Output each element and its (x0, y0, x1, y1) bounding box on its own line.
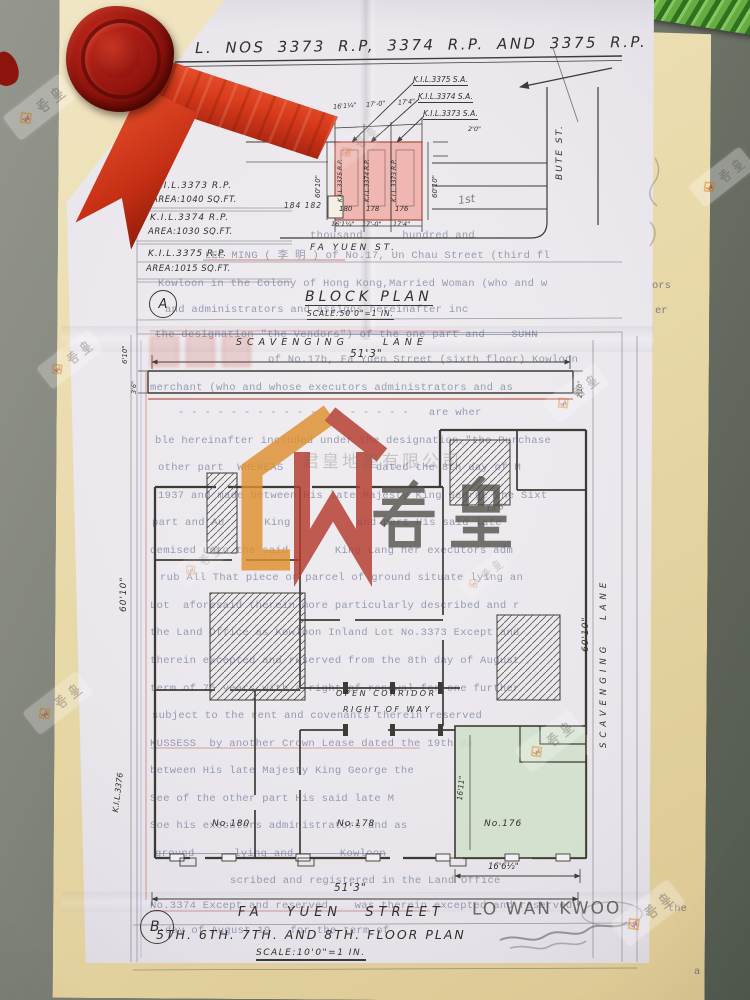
block-dim-left: 60'10" (315, 175, 322, 198)
watermark-company-text: 君皇地產有限公司 (302, 447, 462, 472)
fa-yuen-street-label: FA YUEN STREET (238, 906, 445, 919)
lot-1-number: K.I.L.3373 R.P. (153, 182, 232, 191)
room-label-180: No.180 (212, 820, 250, 829)
block-top-dim-1: 16'1¼" (333, 102, 357, 111)
bute-st-label: BUTE ST. (556, 124, 565, 180)
floor-left-top-dim: 6'10" (122, 345, 129, 364)
pencil-name-lo-wan-kwoo: LO WAN KWOO (472, 898, 622, 919)
block-bottom-dim-2: 17'-0" (362, 221, 382, 228)
leader-label-3374: K.I.L.3374 S.A. (418, 93, 473, 103)
section-a-marker: A (149, 290, 177, 318)
scavenging-lane-right-label: SCAVENGING LANE (600, 578, 609, 748)
lot-2-number: K.I.L.3374 R.P. (150, 214, 229, 223)
lot-2-area: AREA:1030 SQ.FT. (148, 228, 233, 237)
floor-dim-right: 60'10" (582, 616, 591, 652)
floor-top-dim: 51'3" (350, 349, 383, 360)
flo or-plan-title: 5TH. 6TH. 7TH. AND 8TH. FLOOR PLAN (156, 929, 466, 942)
room-label-176: No.176 (484, 820, 522, 829)
floor-plan-scale: SCALE:10'0"=1 IN. (256, 949, 366, 961)
strip-lot-3374: K.I.L.3374 R.P. (365, 159, 371, 202)
house-no-180: 180 (339, 206, 352, 213)
fa-yuen-st-label: FA YUEN ST. (310, 244, 397, 253)
block-plan-scale: SCALE:50'0"=1 IN. (307, 310, 394, 320)
lot-3-area: AREA:1015 SQ.FT. (146, 265, 231, 274)
block-bottom-dim-3: 17'4" (393, 221, 410, 228)
leader-label-3375: K.I.L.3375 S.A. (413, 76, 468, 86)
block-top-dim-3: 17'4" (398, 98, 416, 106)
wax-seal-emboss (94, 32, 140, 78)
floor-bottom-dim: 51'3" (334, 883, 367, 894)
floor-bottom-right-dim: 16'6½" (488, 863, 519, 872)
block-bottom-dim-1: 16'1¼" (331, 221, 354, 228)
right-of-way-label: RIGHT OF WAY (343, 706, 432, 714)
block-top-dim-2: 17'-0" (366, 100, 386, 108)
lot-1-area: AREA:1040 SQ.FT. (152, 196, 237, 205)
strip-lot-3373: K.I.L.3373 R.P. (392, 159, 398, 202)
floor-dim-left: 60'10" (120, 576, 129, 612)
floor-left-small-dim: 3'6" (131, 381, 138, 394)
leader-label-3373: K.I.L.3373 S.A. (423, 110, 478, 120)
room-label-178: No.178 (337, 820, 375, 829)
photographed-deed-document: thousand hundred andLEE MING ( 李 明 ) of … (0, 0, 750, 1000)
block-dim-right: 60'10" (432, 175, 439, 198)
scavenging-lane-top-label: SCAVENGING LANE (236, 338, 428, 348)
lot-3-number: K.I.L.3375 R.P. (148, 250, 227, 259)
open-corridor-label: OPEN CORRIDOR (336, 690, 437, 698)
house-no-176: 176 (395, 206, 408, 213)
house-no-178: 178 (366, 206, 379, 213)
neighbor-house-nos: 184 182 (284, 202, 322, 210)
pencil-note: 1st (457, 192, 476, 207)
block-plan-title: BLOCK PLAN (305, 290, 433, 306)
block-offset-dim: 2'0" (468, 126, 481, 133)
